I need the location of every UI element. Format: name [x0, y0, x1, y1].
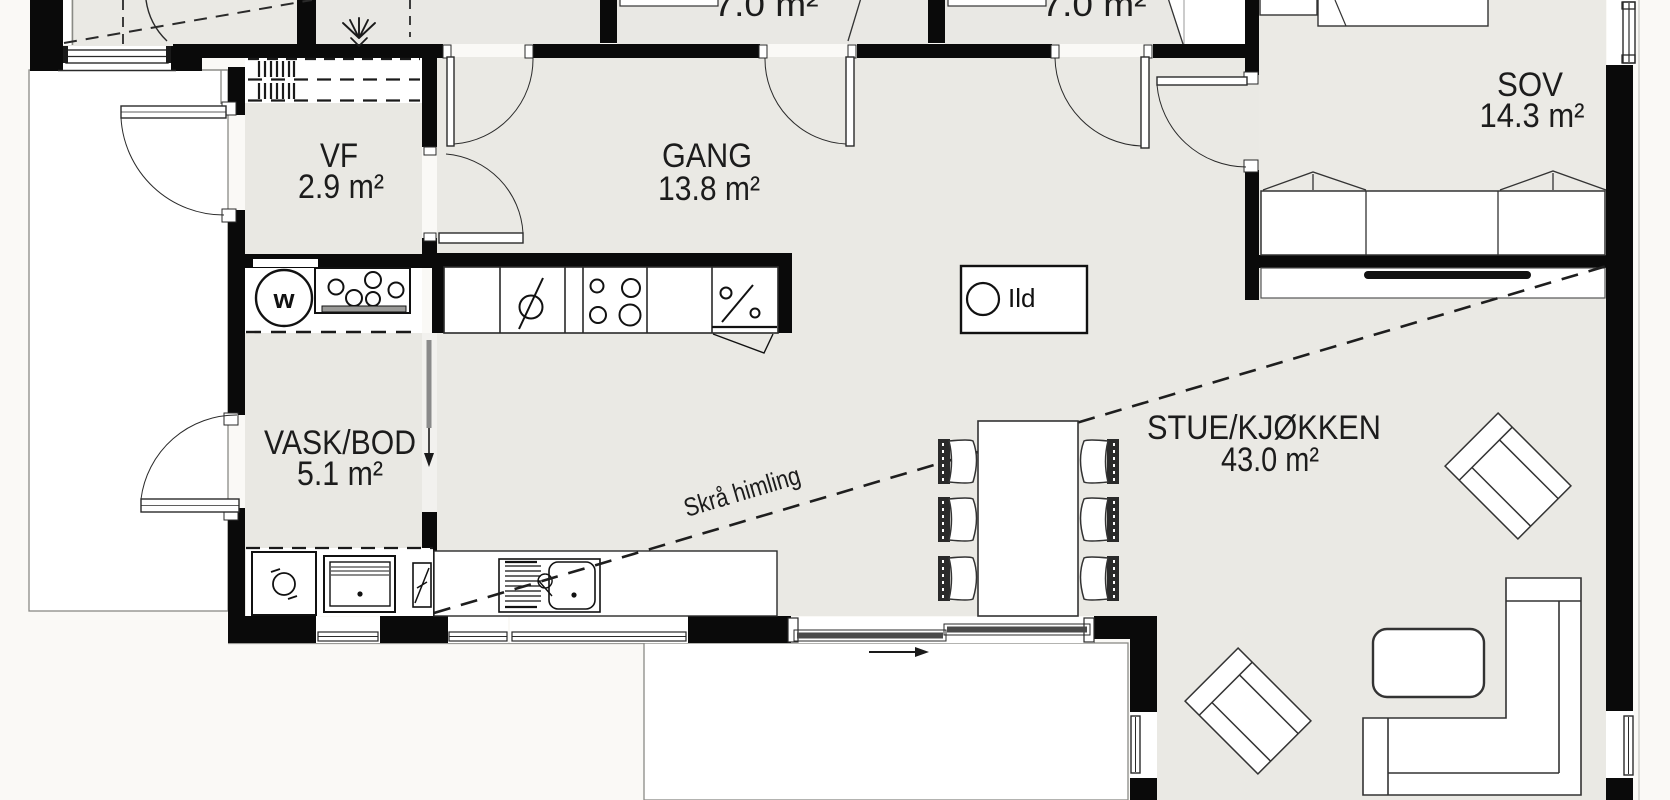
svg-text:13.8 m²: 13.8 m² — [658, 170, 760, 208]
svg-text:7.0 m²: 7.0 m² — [714, 0, 819, 24]
svg-text:14.3 m²: 14.3 m² — [1480, 97, 1585, 135]
svg-text:7.0 m²: 7.0 m² — [1042, 0, 1147, 24]
svg-text:Ild: Ild — [1008, 283, 1035, 313]
svg-text:43.0 m²: 43.0 m² — [1221, 441, 1319, 479]
svg-text:w: w — [272, 284, 295, 314]
svg-text:2.9 m²: 2.9 m² — [298, 168, 384, 206]
svg-text:5.1 m²: 5.1 m² — [297, 455, 383, 493]
